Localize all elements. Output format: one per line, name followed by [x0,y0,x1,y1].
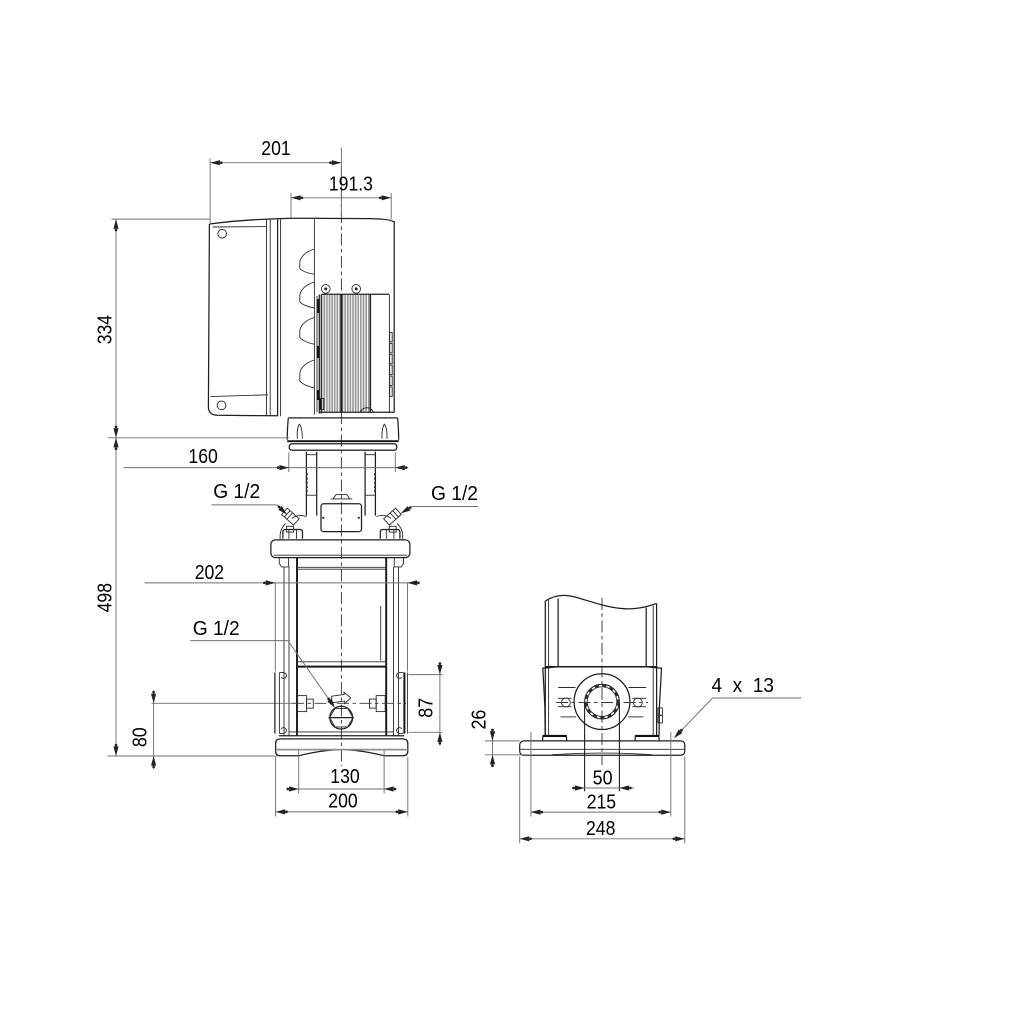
svg-text:200: 200 [328,791,357,813]
svg-text:160: 160 [188,446,217,468]
svg-text:G 1/2: G 1/2 [431,483,478,505]
svg-text:201: 201 [261,138,290,160]
svg-text:G 1/2: G 1/2 [213,481,260,503]
svg-text:G 1/2: G 1/2 [193,618,240,640]
svg-text:334: 334 [94,315,116,344]
svg-text:26: 26 [469,710,491,730]
svg-text:248: 248 [586,818,615,840]
svg-text:215: 215 [587,791,616,813]
svg-text:130: 130 [330,766,359,788]
svg-text:87: 87 [415,698,437,718]
svg-text:202: 202 [195,562,224,584]
svg-text:80: 80 [129,727,151,747]
svg-text:4 x 13: 4 x 13 [712,675,775,697]
svg-text:498: 498 [94,583,116,612]
svg-text:50: 50 [593,767,613,789]
svg-text:191.3: 191.3 [329,174,373,196]
